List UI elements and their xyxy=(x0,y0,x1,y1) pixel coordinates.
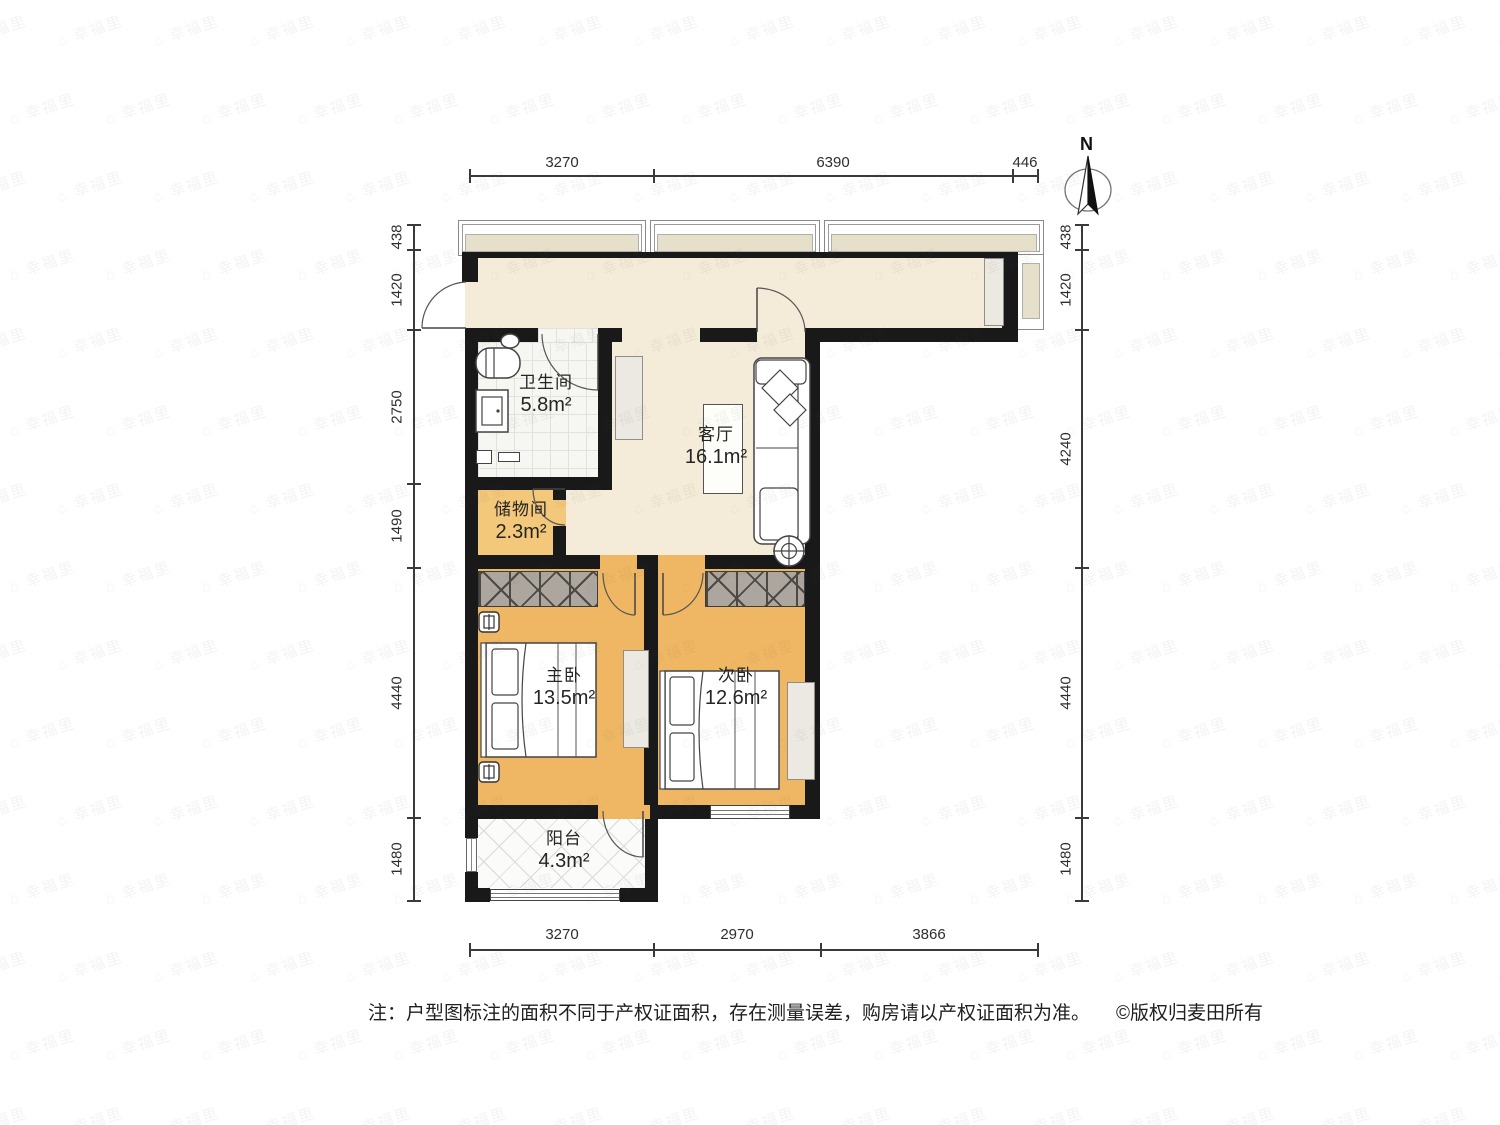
dim-label: 1420 xyxy=(1058,273,1075,306)
watermark: ⌂ 幸福里 xyxy=(918,946,989,987)
watermark: ⌂ 幸福里 xyxy=(150,790,221,831)
watermark: ⌂ 幸福里 xyxy=(1062,556,1133,597)
watermark: ⌂ 幸福里 xyxy=(54,478,125,519)
watermark: ⌂ 幸福里 xyxy=(102,400,173,441)
watermark: ⌂ 幸福里 xyxy=(1302,322,1373,363)
room-area: 12.6m² xyxy=(705,686,767,711)
watermark: ⌂ 幸福里 xyxy=(1494,10,1500,51)
watermark: ⌂ 幸福里 xyxy=(1014,946,1085,987)
watermark: ⌂ 幸福里 xyxy=(1398,634,1469,675)
wall xyxy=(637,555,658,569)
watermark: ⌂ 幸福里 xyxy=(1398,322,1469,363)
watermark: ⌂ 幸福里 xyxy=(726,166,797,207)
watermark: ⌂ 幸福里 xyxy=(1110,322,1181,363)
watermark: ⌂ 幸福里 xyxy=(1254,712,1325,753)
watermark: ⌂ 幸福里 xyxy=(294,712,365,753)
watermark: ⌂ 幸福里 xyxy=(1446,244,1500,285)
watermark: ⌂ 幸福里 xyxy=(774,88,845,129)
dim-tick xyxy=(1012,169,1014,183)
corridor-cabinet xyxy=(984,258,1004,326)
watermark: ⌂ 幸福里 xyxy=(774,1024,845,1065)
watermark: ⌂ 幸福里 xyxy=(1302,634,1373,675)
wall xyxy=(790,805,820,819)
watermark: ⌂ 幸福里 xyxy=(246,634,317,675)
watermark: ⌂ 幸福里 xyxy=(966,1024,1037,1065)
watermark: ⌂ 幸福里 xyxy=(870,556,941,597)
watermark: ⌂ 幸福里 xyxy=(534,166,605,207)
watermark: ⌂ 幸福里 xyxy=(678,88,749,129)
watermark: ⌂ 幸福里 xyxy=(1398,166,1469,207)
watermark: ⌂ 幸福里 xyxy=(1014,478,1085,519)
watermark: ⌂ 幸福里 xyxy=(246,10,317,51)
watermark: ⌂ 幸福里 xyxy=(0,790,30,831)
watermark: ⌂ 幸福里 xyxy=(1302,10,1373,51)
room-name: 次卧 xyxy=(705,665,767,686)
dim-tick xyxy=(407,900,421,902)
living-room-door-arc xyxy=(753,282,809,334)
watermark: ⌂ 幸福里 xyxy=(1398,790,1469,831)
watermark: ⌂ 幸福里 xyxy=(150,322,221,363)
watermark: ⌂ 幸福里 xyxy=(1206,790,1277,831)
watermark: ⌂ 幸福里 xyxy=(486,1024,557,1065)
watermark: ⌂ 幸福里 xyxy=(102,1024,173,1065)
watermark: ⌂ 幸福里 xyxy=(870,88,941,129)
toilet-icon xyxy=(474,332,524,380)
watermark: ⌂ 幸福里 xyxy=(1158,868,1229,909)
watermark: ⌂ 幸福里 xyxy=(0,166,30,207)
watermark: ⌂ 幸福里 xyxy=(1398,946,1469,987)
watermark: ⌂ 幸福里 xyxy=(870,712,941,753)
floorplan-canvas: 卫生间 5.8m² 客厅 16.1m² 储物间 2.3m² 主卧 13.5m² … xyxy=(0,0,1500,1125)
watermark: ⌂ 幸福里 xyxy=(1206,10,1277,51)
wall xyxy=(465,555,600,569)
watermark: ⌂ 幸福里 xyxy=(438,946,509,987)
dim-label: 3866 xyxy=(912,926,945,943)
passage-gap xyxy=(622,328,700,342)
dim-label: 4440 xyxy=(389,676,406,709)
room-name: 阳台 xyxy=(538,828,589,849)
watermark: ⌂ 幸福里 xyxy=(102,868,173,909)
bay-window-section-1 xyxy=(458,220,646,256)
watermark: ⌂ 幸福里 xyxy=(294,868,365,909)
watermark: ⌂ 幸福里 xyxy=(630,1102,701,1125)
watermark: ⌂ 幸福里 xyxy=(246,322,317,363)
watermark: ⌂ 幸福里 xyxy=(1446,712,1500,753)
dim-tick xyxy=(653,943,655,957)
bathroom-fixture xyxy=(476,450,492,464)
watermark: ⌂ 幸福里 xyxy=(1302,1102,1373,1125)
watermark: ⌂ 幸福里 xyxy=(822,634,893,675)
watermark: ⌂ 幸福里 xyxy=(294,1024,365,1065)
dim-label: 4440 xyxy=(1058,676,1075,709)
watermark: ⌂ 幸福里 xyxy=(486,88,557,129)
watermark: ⌂ 幸福里 xyxy=(1446,1024,1500,1065)
watermark: ⌂ 幸福里 xyxy=(1350,1024,1421,1065)
watermark: ⌂ 幸福里 xyxy=(1206,478,1277,519)
dim-label: 1420 xyxy=(389,273,406,306)
wall xyxy=(465,252,1016,258)
watermark: ⌂ 幸福里 xyxy=(1302,946,1373,987)
dim-tick xyxy=(1075,329,1089,331)
watermark: ⌂ 幸福里 xyxy=(918,790,989,831)
dim-label: 2970 xyxy=(720,926,753,943)
second-door-arc xyxy=(659,569,707,619)
dim-label: 438 xyxy=(1058,224,1075,249)
watermark: ⌂ 幸福里 xyxy=(54,10,125,51)
watermark: ⌂ 幸福里 xyxy=(966,400,1037,441)
watermark: ⌂ 幸福里 xyxy=(822,478,893,519)
watermark: ⌂ 幸福里 xyxy=(1254,868,1325,909)
wall xyxy=(465,805,598,819)
watermark: ⌂ 幸福里 xyxy=(246,790,317,831)
watermark: ⌂ 幸福里 xyxy=(1446,868,1500,909)
watermark: ⌂ 幸福里 xyxy=(822,946,893,987)
ac-outlet-icon xyxy=(477,610,501,634)
dim-tick xyxy=(1075,224,1089,226)
watermark: ⌂ 幸福里 xyxy=(54,634,125,675)
watermark: ⌂ 幸福里 xyxy=(1494,634,1500,675)
watermark: ⌂ 幸福里 xyxy=(1206,1102,1277,1125)
bathroom-fixture xyxy=(498,452,520,462)
watermark: ⌂ 幸福里 xyxy=(294,400,365,441)
watermark: ⌂ 幸福里 xyxy=(102,556,173,597)
watermark: ⌂ 幸福里 xyxy=(822,166,893,207)
watermark: ⌂ 幸福里 xyxy=(438,166,509,207)
sofa xyxy=(752,356,814,550)
watermark: ⌂ 幸福里 xyxy=(390,712,461,753)
watermark: ⌂ 幸福里 xyxy=(1494,166,1500,207)
watermark: ⌂ 幸福里 xyxy=(198,88,269,129)
dim-tick xyxy=(1037,943,1039,957)
dim-tick xyxy=(407,567,421,569)
disclaimer-text: 注：户型图标注的面积不同于产权证面积，存在测量误差，购房请以产权证面积为准。 xyxy=(368,1003,1090,1024)
watermark: ⌂ 幸福里 xyxy=(6,244,77,285)
watermark: ⌂ 幸福里 xyxy=(966,88,1037,129)
watermark: ⌂ 幸福里 xyxy=(1158,244,1229,285)
watermark: ⌂ 幸福里 xyxy=(726,946,797,987)
watermark: ⌂ 幸福里 xyxy=(342,634,413,675)
watermark: ⌂ 幸福里 xyxy=(6,712,77,753)
master-bedroom-label: 主卧 13.5m² xyxy=(533,665,595,711)
watermark: ⌂ 幸福里 xyxy=(1254,556,1325,597)
watermark: ⌂ 幸福里 xyxy=(1350,244,1421,285)
watermark: ⌂ 幸福里 xyxy=(1398,10,1469,51)
master-wardrobe xyxy=(478,571,598,607)
watermark: ⌂ 幸福里 xyxy=(102,712,173,753)
watermark: ⌂ 幸福里 xyxy=(1350,712,1421,753)
dim-tick xyxy=(1075,900,1089,902)
room-area: 16.1m² xyxy=(685,445,747,470)
watermark: ⌂ 幸福里 xyxy=(1350,868,1421,909)
dim-line-top xyxy=(470,175,1038,177)
living-room-label: 客厅 16.1m² xyxy=(685,424,747,470)
watermark: ⌂ 幸福里 xyxy=(726,1102,797,1125)
watermark: ⌂ 幸福里 xyxy=(0,10,30,51)
watermark: ⌂ 幸福里 xyxy=(1110,1102,1181,1125)
wall xyxy=(465,888,490,902)
watermark: ⌂ 幸福里 xyxy=(1446,400,1500,441)
dim-label: 1490 xyxy=(389,509,406,542)
wall xyxy=(805,328,1018,342)
floor-lamp-icon xyxy=(770,532,808,570)
watermark: ⌂ 幸福里 xyxy=(1110,946,1181,987)
room-area: 13.5m² xyxy=(533,686,595,711)
watermark: ⌂ 幸福里 xyxy=(678,1024,749,1065)
watermark: ⌂ 幸福里 xyxy=(150,634,221,675)
bathroom-label: 卫生间 5.8m² xyxy=(519,372,573,418)
dim-tick xyxy=(1075,567,1089,569)
watermark: ⌂ 幸福里 xyxy=(1398,478,1469,519)
watermark: ⌂ 幸福里 xyxy=(54,1102,125,1125)
watermark: ⌂ 幸福里 xyxy=(918,634,989,675)
dim-tick xyxy=(653,169,655,183)
watermark: ⌂ 幸福里 xyxy=(630,166,701,207)
watermark: ⌂ 幸福里 xyxy=(1014,1102,1085,1125)
watermark: ⌂ 幸福里 xyxy=(1206,166,1277,207)
room-area: 2.3m² xyxy=(494,520,548,545)
dim-label: 1480 xyxy=(389,842,406,875)
watermark: ⌂ 幸福里 xyxy=(1062,88,1133,129)
bay-window-section-2 xyxy=(650,220,820,256)
entry-door-arc xyxy=(420,274,468,332)
watermark: ⌂ 幸福里 xyxy=(390,1024,461,1065)
watermark: ⌂ 幸福里 xyxy=(198,1024,269,1065)
watermark: ⌂ 幸福里 xyxy=(1446,556,1500,597)
footer-note-row: 注：户型图标注的面积不同于产权证面积，存在测量误差，购房请以产权证面积为准。©版… xyxy=(368,998,1188,1025)
dim-label: 4240 xyxy=(1058,432,1075,465)
watermark: ⌂ 幸福里 xyxy=(1302,166,1373,207)
dim-line-right xyxy=(1081,225,1083,901)
dim-tick xyxy=(407,329,421,331)
room-name: 储物间 xyxy=(494,499,548,520)
dim-label: 6390 xyxy=(816,154,849,171)
watermark: ⌂ 幸福里 xyxy=(1398,1102,1469,1125)
window-glass xyxy=(1022,263,1040,319)
watermark: ⌂ 幸福里 xyxy=(678,868,749,909)
watermark: ⌂ 幸福里 xyxy=(1158,88,1229,129)
ac-outlet-icon xyxy=(477,760,501,784)
watermark: ⌂ 幸福里 xyxy=(150,1102,221,1125)
window-glass xyxy=(831,234,1037,252)
room-name: 客厅 xyxy=(685,424,747,445)
master-door-gap xyxy=(600,555,637,569)
watermark: ⌂ 幸福里 xyxy=(246,946,317,987)
watermark: ⌂ 幸福里 xyxy=(1158,400,1229,441)
dim-label: 446 xyxy=(1012,154,1037,171)
dim-tick xyxy=(469,169,471,183)
watermark: ⌂ 幸福里 xyxy=(1110,790,1181,831)
room-area: 4.3m² xyxy=(538,849,589,874)
watermark: ⌂ 幸福里 xyxy=(1446,88,1500,129)
watermark: ⌂ 幸福里 xyxy=(390,88,461,129)
watermark: ⌂ 幸福里 xyxy=(870,868,941,909)
watermark: ⌂ 幸福里 xyxy=(1110,634,1181,675)
watermark: ⌂ 幸福里 xyxy=(774,868,845,909)
wall xyxy=(700,328,757,342)
watermark: ⌂ 幸福里 xyxy=(6,1024,77,1065)
watermark: ⌂ 幸福里 xyxy=(1206,634,1277,675)
watermark: ⌂ 幸福里 xyxy=(1158,712,1229,753)
watermark: ⌂ 幸福里 xyxy=(1062,1024,1133,1065)
watermark: ⌂ 幸福里 xyxy=(102,244,173,285)
balcony-railing-left xyxy=(466,838,477,872)
dim-line-left xyxy=(413,225,415,901)
watermark: ⌂ 幸福里 xyxy=(198,400,269,441)
watermark: ⌂ 幸福里 xyxy=(1110,478,1181,519)
watermark: ⌂ 幸福里 xyxy=(0,634,30,675)
watermark: ⌂ 幸福里 xyxy=(1494,478,1500,519)
watermark: ⌂ 幸福里 xyxy=(1350,88,1421,129)
watermark: ⌂ 幸福里 xyxy=(54,946,125,987)
watermark: ⌂ 幸福里 xyxy=(342,166,413,207)
wall xyxy=(620,888,658,902)
watermark: ⌂ 幸福里 xyxy=(198,556,269,597)
watermark: ⌂ 幸福里 xyxy=(918,10,989,51)
watermark: ⌂ 幸福里 xyxy=(6,868,77,909)
bay-window-corner-wrap xyxy=(1016,254,1044,330)
watermark: ⌂ 幸福里 xyxy=(1110,166,1181,207)
second-bedroom-window xyxy=(710,805,790,819)
watermark: ⌂ 幸福里 xyxy=(1254,400,1325,441)
watermark: ⌂ 幸福里 xyxy=(1014,634,1085,675)
watermark: ⌂ 幸福里 xyxy=(198,868,269,909)
watermark: ⌂ 幸福里 xyxy=(342,946,413,987)
copyright-text: ©版权归麦田所有 xyxy=(1116,1003,1263,1024)
wall xyxy=(650,805,710,819)
room-area: 5.8m² xyxy=(519,393,573,418)
watermark: ⌂ 幸福里 xyxy=(822,1102,893,1125)
watermark: ⌂ 幸福里 xyxy=(150,166,221,207)
watermark: ⌂ 幸福里 xyxy=(102,88,173,129)
watermark: ⌂ 幸福里 xyxy=(1110,10,1181,51)
watermark: ⌂ 幸福里 xyxy=(0,322,30,363)
balcony-railing-bottom xyxy=(490,889,620,901)
dim-tick xyxy=(407,224,421,226)
room-name: 卫生间 xyxy=(519,372,573,393)
dim-label: 3270 xyxy=(545,154,578,171)
watermark: ⌂ 幸福里 xyxy=(198,244,269,285)
dim-label: 3270 xyxy=(545,926,578,943)
north-compass-icon xyxy=(1058,152,1118,222)
watermark: ⌂ 幸福里 xyxy=(534,10,605,51)
watermark: ⌂ 幸福里 xyxy=(390,556,461,597)
window-glass xyxy=(657,234,813,252)
watermark: ⌂ 幸福里 xyxy=(54,790,125,831)
watermark: ⌂ 幸福里 xyxy=(342,322,413,363)
second-side-cabinet xyxy=(787,682,815,780)
watermark: ⌂ 幸福里 xyxy=(150,478,221,519)
dim-tick xyxy=(820,943,822,957)
watermark: ⌂ 幸福里 xyxy=(1014,790,1085,831)
tv-cabinet xyxy=(615,356,643,440)
watermark: ⌂ 幸福里 xyxy=(1350,556,1421,597)
watermark: ⌂ 幸福里 xyxy=(918,1102,989,1125)
watermark: ⌂ 幸福里 xyxy=(0,946,30,987)
balcony-label: 阳台 4.3m² xyxy=(538,828,589,874)
watermark: ⌂ 幸福里 xyxy=(1302,478,1373,519)
watermark: ⌂ 幸福里 xyxy=(342,1102,413,1125)
watermark: ⌂ 幸福里 xyxy=(294,88,365,129)
dim-label: 438 xyxy=(389,224,406,249)
second-bedroom-label: 次卧 12.6m² xyxy=(705,665,767,711)
watermark: ⌂ 幸福里 xyxy=(966,712,1037,753)
watermark: ⌂ 幸福里 xyxy=(246,166,317,207)
watermark: ⌂ 幸福里 xyxy=(1014,10,1085,51)
watermark: ⌂ 幸福里 xyxy=(870,400,941,441)
watermark: ⌂ 幸福里 xyxy=(534,1102,605,1125)
watermark: ⌂ 幸福里 xyxy=(1302,790,1373,831)
bay-window-section-3 xyxy=(824,220,1044,256)
dim-tick xyxy=(1075,249,1089,251)
watermark: ⌂ 幸福里 xyxy=(726,10,797,51)
watermark: ⌂ 幸福里 xyxy=(246,478,317,519)
watermark: ⌂ 幸福里 xyxy=(966,556,1037,597)
watermark: ⌂ 幸福里 xyxy=(1158,1024,1229,1065)
watermark: ⌂ 幸福里 xyxy=(966,868,1037,909)
corridor-floor xyxy=(478,258,1002,328)
watermark: ⌂ 幸福里 xyxy=(1494,1102,1500,1125)
dim-tick xyxy=(407,817,421,819)
watermark: ⌂ 幸福里 xyxy=(1158,556,1229,597)
room-name: 主卧 xyxy=(533,665,595,686)
master-side-cabinet xyxy=(623,650,649,748)
dim-tick xyxy=(407,249,421,251)
dim-label: 1480 xyxy=(1058,842,1075,875)
watermark: ⌂ 幸福里 xyxy=(1062,712,1133,753)
watermark: ⌂ 幸福里 xyxy=(1206,946,1277,987)
dim-label: 2750 xyxy=(389,390,406,423)
watermark: ⌂ 幸福里 xyxy=(1494,790,1500,831)
dim-line-bottom xyxy=(470,949,1038,951)
dim-tick xyxy=(1075,817,1089,819)
watermark: ⌂ 幸福里 xyxy=(294,556,365,597)
watermark: ⌂ 幸福里 xyxy=(582,88,653,129)
watermark: ⌂ 幸福里 xyxy=(822,10,893,51)
watermark: ⌂ 幸福里 xyxy=(294,244,365,285)
watermark: ⌂ 幸福里 xyxy=(342,790,413,831)
washbasin-icon xyxy=(474,388,510,434)
watermark: ⌂ 幸福里 xyxy=(582,1024,653,1065)
watermark: ⌂ 幸福里 xyxy=(246,1102,317,1125)
watermark: ⌂ 幸福里 xyxy=(918,166,989,207)
balcony-door-arc xyxy=(597,807,649,863)
watermark: ⌂ 幸福里 xyxy=(150,10,221,51)
watermark: ⌂ 幸福里 xyxy=(534,946,605,987)
watermark: ⌂ 幸福里 xyxy=(6,400,77,441)
watermark: ⌂ 幸福里 xyxy=(870,1024,941,1065)
watermark: ⌂ 幸福里 xyxy=(0,1102,30,1125)
storage-label: 储物间 2.3m² xyxy=(494,499,548,545)
watermark: ⌂ 幸福里 xyxy=(198,712,269,753)
watermark: ⌂ 幸福里 xyxy=(6,556,77,597)
second-wardrobe xyxy=(705,571,805,607)
watermark: ⌂ 幸福里 xyxy=(822,790,893,831)
watermark: ⌂ 幸福里 xyxy=(630,946,701,987)
dim-tick xyxy=(469,943,471,957)
watermark: ⌂ 幸福里 xyxy=(342,10,413,51)
watermark: ⌂ 幸福里 xyxy=(1254,244,1325,285)
watermark: ⌂ 幸福里 xyxy=(918,478,989,519)
dim-tick xyxy=(1037,169,1039,183)
watermark: ⌂ 幸福里 xyxy=(438,10,509,51)
watermark: ⌂ 幸福里 xyxy=(1206,322,1277,363)
window-glass xyxy=(465,234,639,252)
watermark: ⌂ 幸福里 xyxy=(150,946,221,987)
second-door-gap xyxy=(658,555,705,569)
watermark: ⌂ 幸福里 xyxy=(1254,88,1325,129)
watermark: ⌂ 幸福里 xyxy=(1494,322,1500,363)
watermark: ⌂ 幸福里 xyxy=(438,1102,509,1125)
